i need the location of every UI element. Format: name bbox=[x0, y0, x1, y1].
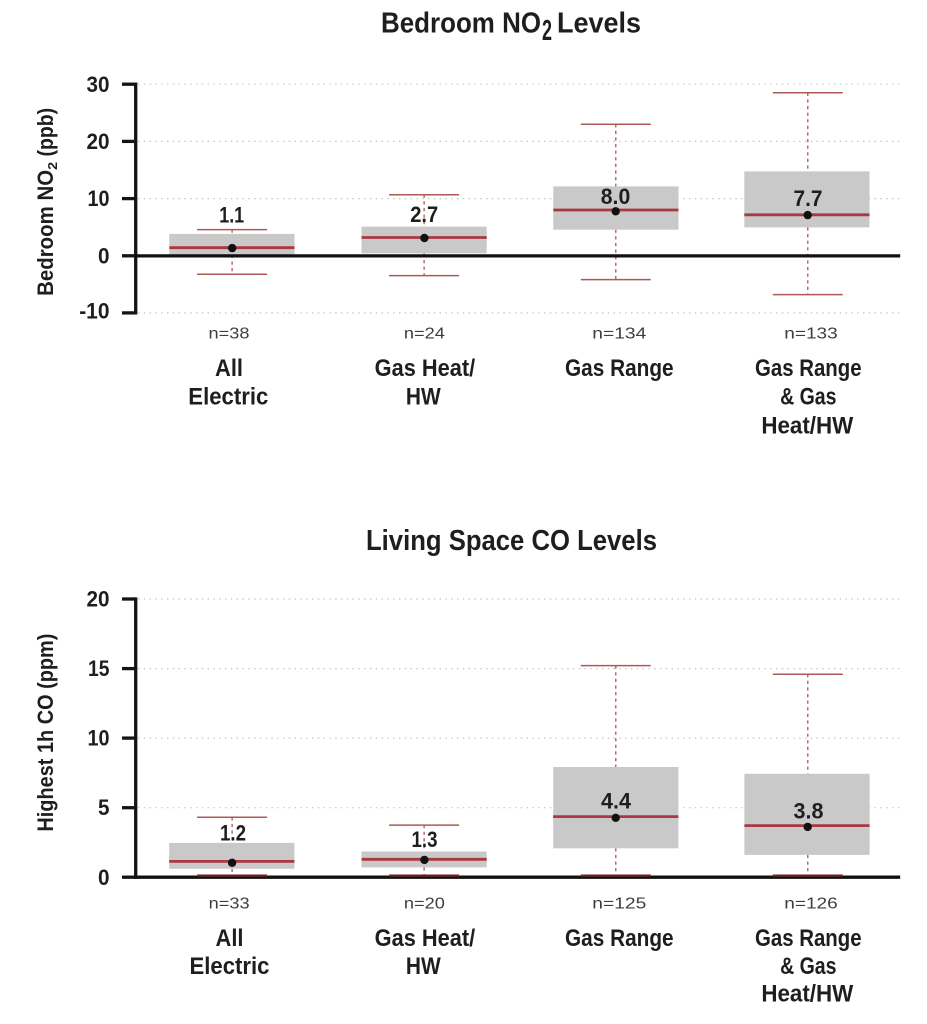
svg-text:& Gas: & Gas bbox=[780, 385, 836, 411]
svg-text:Gas Heat/: Gas Heat/ bbox=[375, 356, 476, 382]
svg-text:All: All bbox=[215, 356, 243, 382]
svg-text:-10: -10 bbox=[79, 299, 109, 324]
svg-text:3.8: 3.8 bbox=[794, 798, 824, 823]
svg-text:7.7: 7.7 bbox=[794, 186, 823, 211]
svg-text:Heat/HW: Heat/HW bbox=[761, 414, 854, 440]
svg-text:All: All bbox=[216, 926, 244, 952]
svg-text:Heat/HW: Heat/HW bbox=[761, 982, 854, 1008]
svg-text:Levels: Levels bbox=[557, 7, 641, 39]
svg-text:1.3: 1.3 bbox=[412, 827, 438, 852]
svg-text:Bedroom NO: Bedroom NO bbox=[381, 7, 541, 39]
svg-text:Gas Range: Gas Range bbox=[755, 356, 862, 382]
svg-text:5: 5 bbox=[98, 795, 110, 820]
svg-text:n=133: n=133 bbox=[784, 326, 838, 343]
svg-text:Gas Range: Gas Range bbox=[565, 356, 674, 382]
svg-text:0: 0 bbox=[98, 865, 110, 890]
svg-text:Electric: Electric bbox=[188, 385, 268, 411]
svg-text:20: 20 bbox=[87, 129, 110, 154]
svg-text:20: 20 bbox=[87, 587, 110, 612]
svg-text:n=33: n=33 bbox=[209, 895, 250, 912]
svg-text:Gas Heat/: Gas Heat/ bbox=[375, 926, 476, 952]
svg-text:4.4: 4.4 bbox=[601, 789, 632, 814]
svg-text:Bedroom NO2 (ppb): Bedroom NO2 (ppb) bbox=[33, 108, 60, 296]
svg-text:2.7: 2.7 bbox=[410, 202, 438, 227]
svg-text:Electric: Electric bbox=[190, 954, 270, 980]
svg-text:n=125: n=125 bbox=[592, 895, 646, 912]
svg-text:n=126: n=126 bbox=[784, 895, 838, 912]
svg-text:0: 0 bbox=[98, 243, 110, 268]
svg-text:10: 10 bbox=[88, 186, 110, 211]
svg-text:Living Space CO Levels: Living Space CO Levels bbox=[366, 525, 657, 557]
svg-text:1.2: 1.2 bbox=[220, 821, 246, 846]
svg-text:HW: HW bbox=[406, 954, 441, 980]
svg-text:15: 15 bbox=[88, 656, 110, 681]
svg-text:Gas Range: Gas Range bbox=[755, 926, 862, 952]
svg-text:10: 10 bbox=[88, 726, 110, 751]
svg-text:& Gas: & Gas bbox=[780, 954, 836, 980]
svg-text:n=20: n=20 bbox=[404, 895, 445, 912]
svg-text:n=134: n=134 bbox=[592, 326, 646, 343]
svg-text:Gas Range: Gas Range bbox=[565, 926, 674, 952]
svg-text:1.1: 1.1 bbox=[219, 203, 244, 228]
svg-text:Highest 1h CO (ppm): Highest 1h CO (ppm) bbox=[33, 634, 58, 832]
svg-text:HW: HW bbox=[406, 385, 441, 411]
svg-text:8.0: 8.0 bbox=[601, 184, 631, 209]
svg-text:2: 2 bbox=[542, 15, 552, 47]
svg-text:n=24: n=24 bbox=[404, 326, 445, 343]
svg-text:n=38: n=38 bbox=[209, 326, 250, 343]
svg-text:30: 30 bbox=[87, 72, 110, 97]
